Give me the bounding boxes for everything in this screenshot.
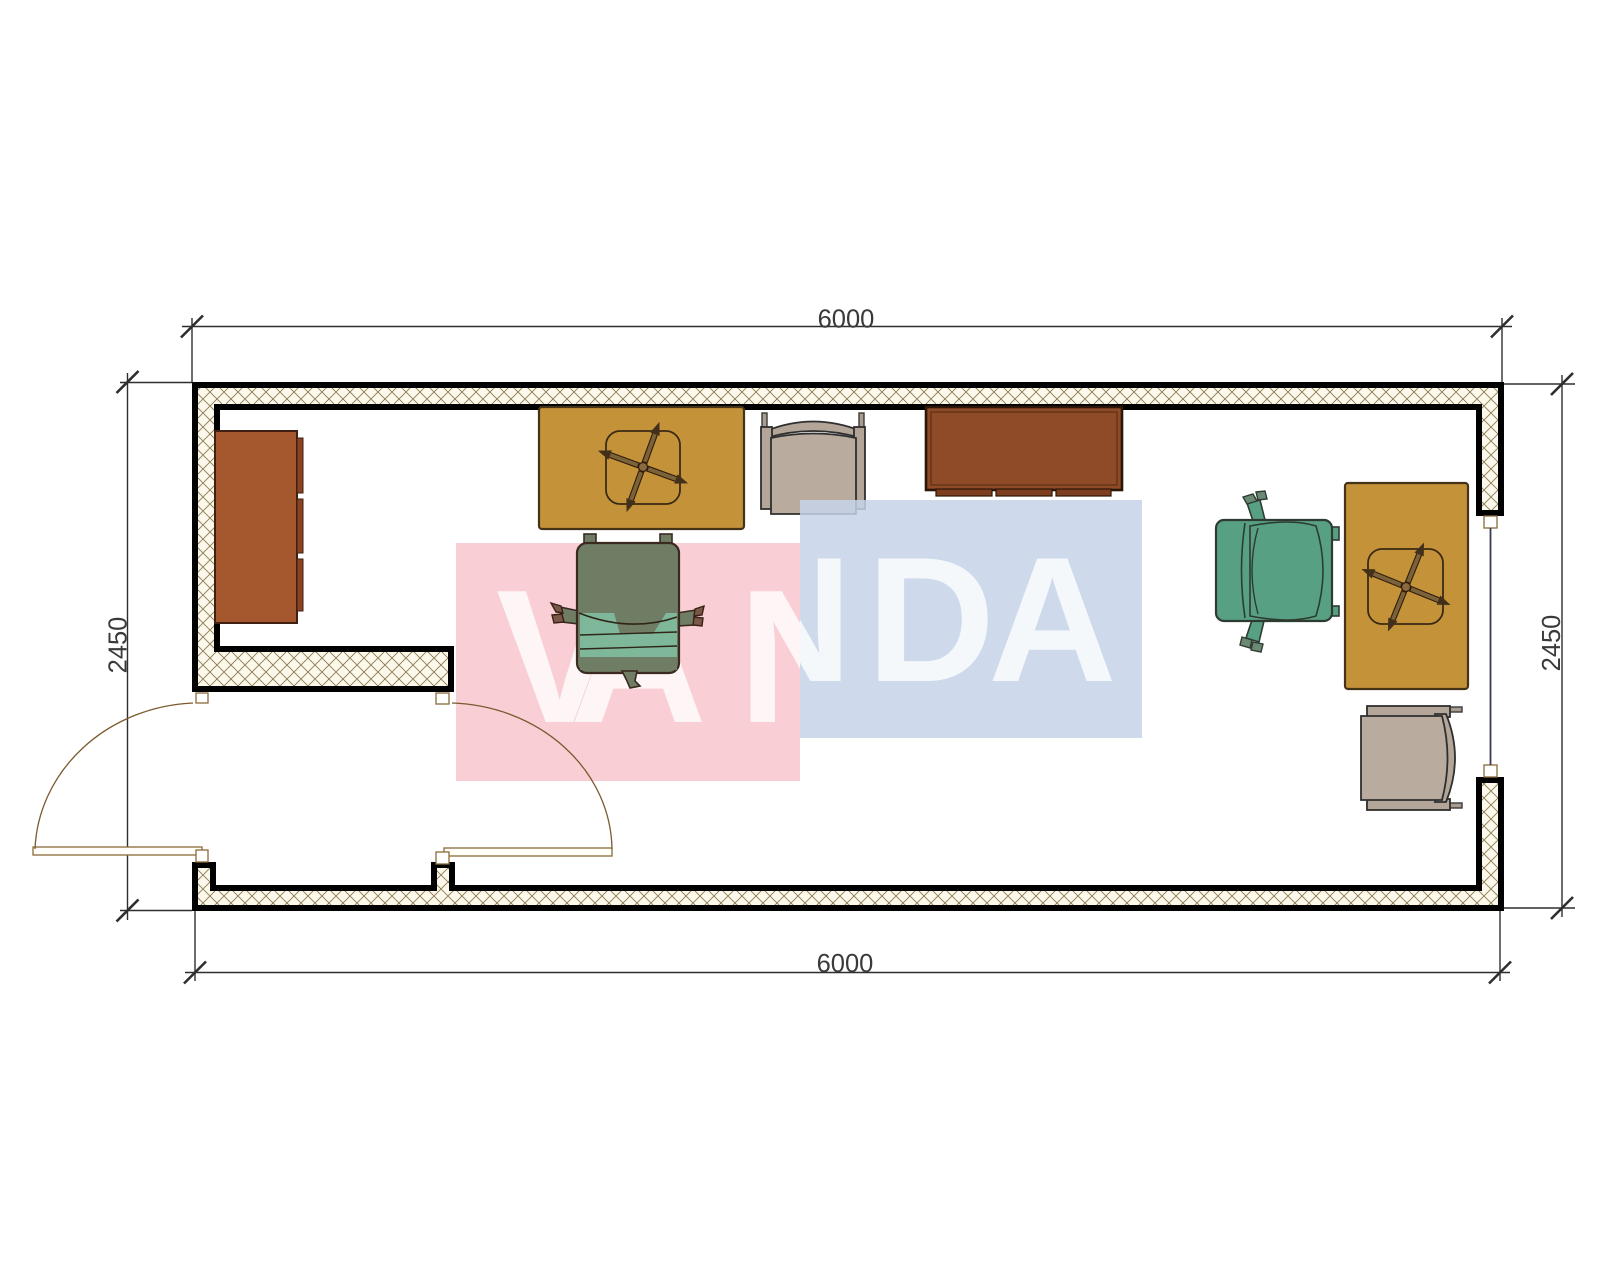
svg-text:2450: 2450	[105, 617, 133, 674]
svg-text:2450: 2450	[1538, 615, 1566, 672]
svg-text:6000: 6000	[817, 950, 874, 978]
svg-text:6000: 6000	[818, 306, 875, 334]
